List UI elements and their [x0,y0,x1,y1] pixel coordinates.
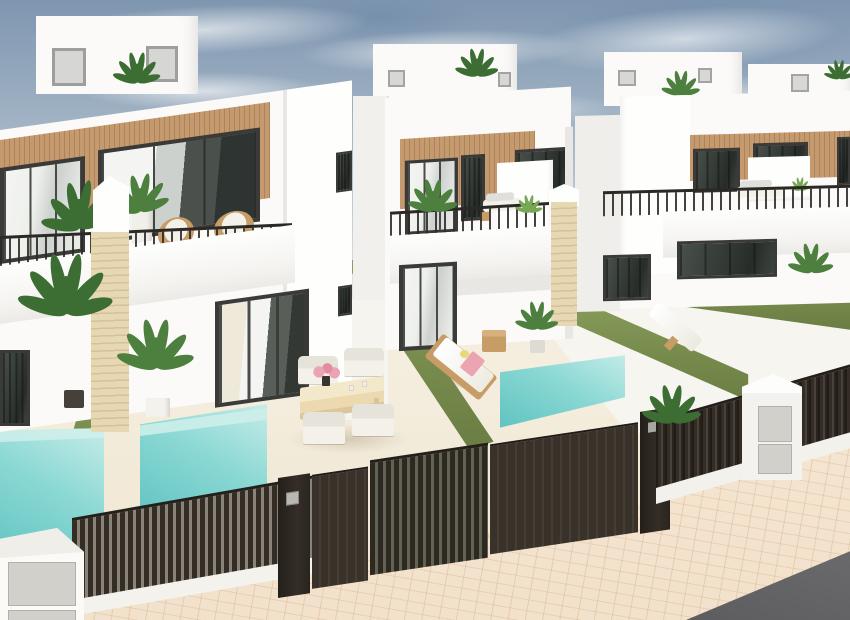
house3-yard-palm-icon [791,236,831,294]
house3-ground-window [603,254,651,301]
house1-stair-ground-window [338,285,352,317]
house2-roof-vent [498,72,511,87]
candle [349,385,354,391]
house2-side-wall [353,96,389,316]
house2-yard-plant-pot [530,340,545,353]
house2-sofa-pillows [486,192,514,202]
house2-yard-plant-icon [518,298,556,346]
gate-slatted-section [370,443,488,576]
dining-chair [352,404,394,436]
house2-balcony-small-plant-icon [517,192,541,224]
lounger-house3-pad [648,302,703,353]
house1-roof-plant-icon [114,54,160,96]
gate-sliding-panel [490,422,638,554]
lounger-house2 [430,330,510,396]
gate-keypad [286,491,299,506]
sun-hat [460,350,469,358]
pink-flowers [312,362,340,380]
patio-bamboo-pot [146,398,170,417]
house3-ground-window [677,239,777,280]
house2-roof-vent [388,70,405,87]
dining-chair [303,412,345,444]
house1-roof-door [52,48,86,86]
meter-panel [8,610,76,620]
meter-panel [758,406,792,442]
architectural-render [0,0,850,620]
yard-palm-tall-icon [24,234,108,364]
meter-panel [8,562,76,606]
house3-window [693,148,740,193]
gate-panel-left [312,467,368,589]
house3-window [837,137,850,185]
meter-panel [758,444,792,474]
patio-bamboo-icon [122,306,190,406]
house3-roof-vent [618,70,636,86]
house2-balcony-plant-icon [411,172,455,234]
candle [362,381,367,387]
gate-palm-icon [646,382,698,444]
house2-roof-plant-icon [458,46,496,92]
house1-ground-glass-door [215,289,309,408]
yard-palm-pot [64,390,84,408]
house1-stair-window [336,151,352,193]
dining-chair [344,348,384,376]
lounger-house3 [645,300,705,356]
side-table [482,330,506,352]
house3-roof-vent [698,68,712,83]
